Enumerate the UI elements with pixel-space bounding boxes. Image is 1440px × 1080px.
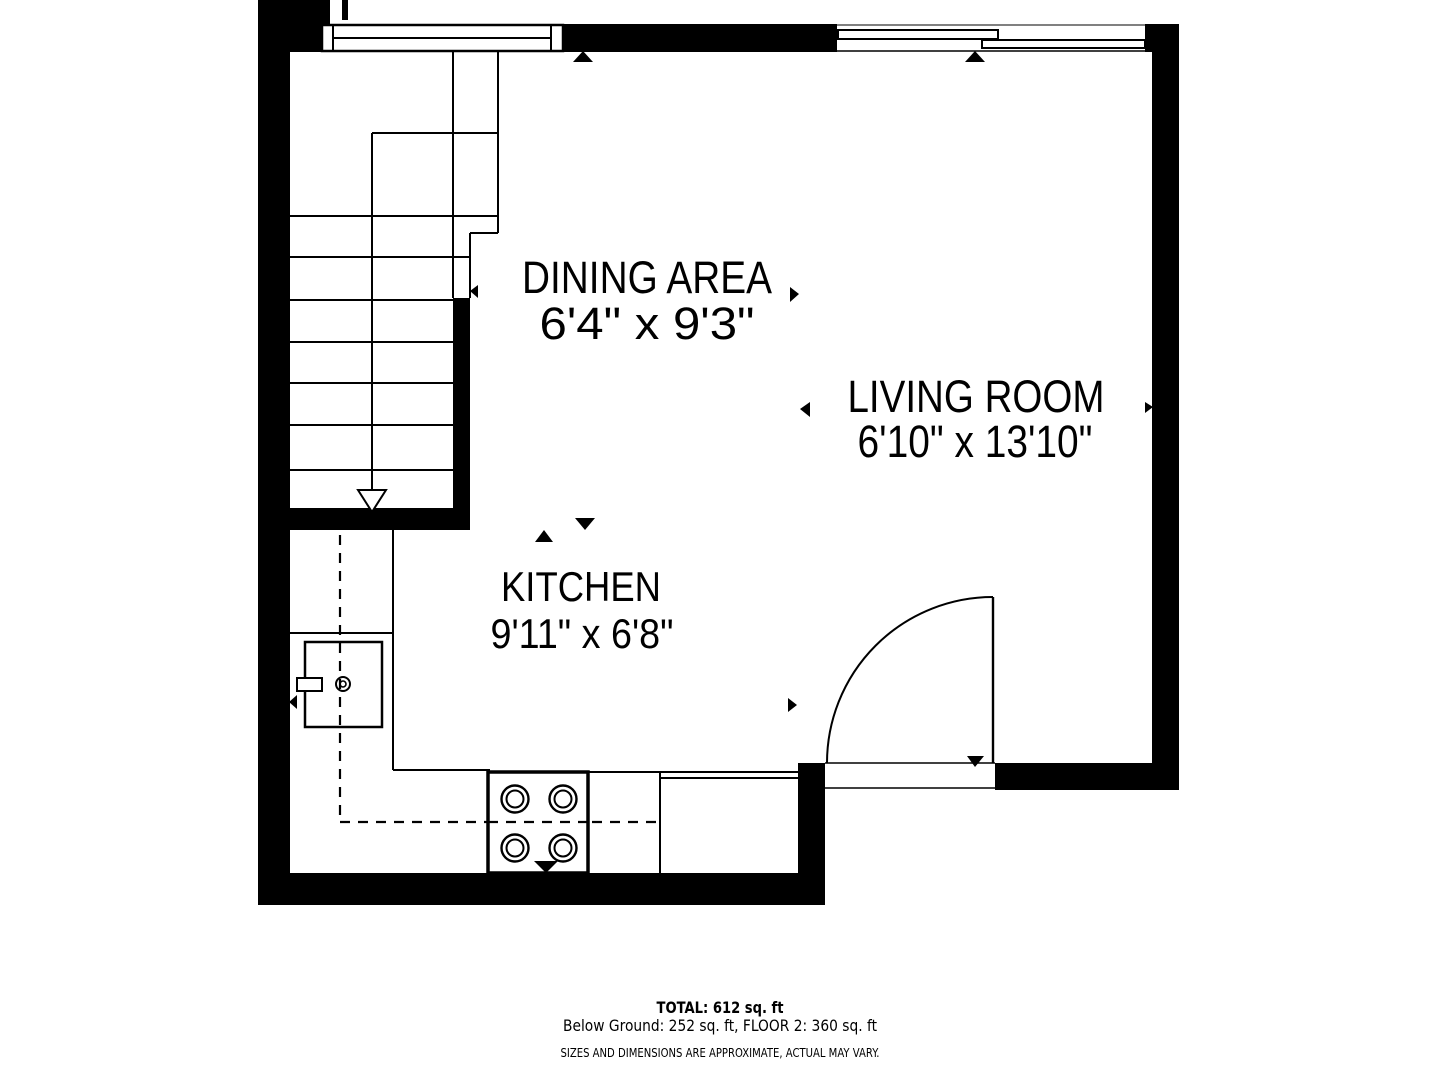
disclaimer-text: SIZES AND DIMENSIONS ARE APPROXIMATE, AC… — [561, 1045, 880, 1060]
arrow-up-icon — [573, 51, 593, 62]
arrow-up-icon — [965, 51, 985, 62]
stair-side-wall — [453, 298, 470, 530]
floor-plan-svg: DINING AREA 6'4" x 9'3" LIVING ROOM 6'10… — [0, 0, 1440, 1080]
room-dims-dining: 6'4" x 9'3" — [540, 298, 755, 349]
total-area-text: TOTAL: 612 sq. ft — [657, 998, 784, 1017]
arrow-left-icon — [470, 285, 478, 298]
bottom-wall-left-segment — [258, 873, 825, 905]
door-swing-arc — [827, 597, 993, 763]
right-wall — [1152, 24, 1179, 790]
room-dims-living: 6'10" x 13'10" — [858, 416, 1093, 467]
bottom-wall-right-segment — [995, 763, 1179, 790]
door-jog-wall — [798, 763, 825, 905]
wall-stub-small — [342, 0, 348, 20]
wall-stub-top-left — [258, 0, 330, 24]
arrow-down-icon — [967, 756, 984, 767]
left-wall — [258, 24, 290, 905]
arrow-right-icon — [790, 287, 799, 302]
arrow-down-icon — [575, 518, 595, 530]
arrow-up-icon — [535, 530, 553, 542]
room-label-kitchen: KITCHEN — [501, 563, 661, 610]
stair-bottom-wall — [288, 508, 470, 530]
arrow-right-icon — [1145, 402, 1153, 413]
stove — [488, 772, 588, 873]
window-top-left — [322, 25, 563, 51]
sliding-window-top-right — [837, 25, 1145, 51]
arrow-left-icon — [289, 695, 297, 709]
top-wall-middle-segment — [562, 24, 837, 52]
room-label-dining: DINING AREA — [522, 252, 772, 303]
room-label-living: LIVING ROOM — [848, 371, 1105, 422]
room-dims-kitchen: 9'11" x 6'8" — [491, 610, 674, 657]
arrow-left-icon — [800, 402, 810, 417]
floor-plan-page: DINING AREA 6'4" x 9'3" LIVING ROOM 6'10… — [0, 0, 1440, 1080]
area-breakdown-text: Below Ground: 252 sq. ft, FLOOR 2: 360 s… — [563, 1016, 877, 1035]
arrow-right-icon — [788, 698, 797, 712]
